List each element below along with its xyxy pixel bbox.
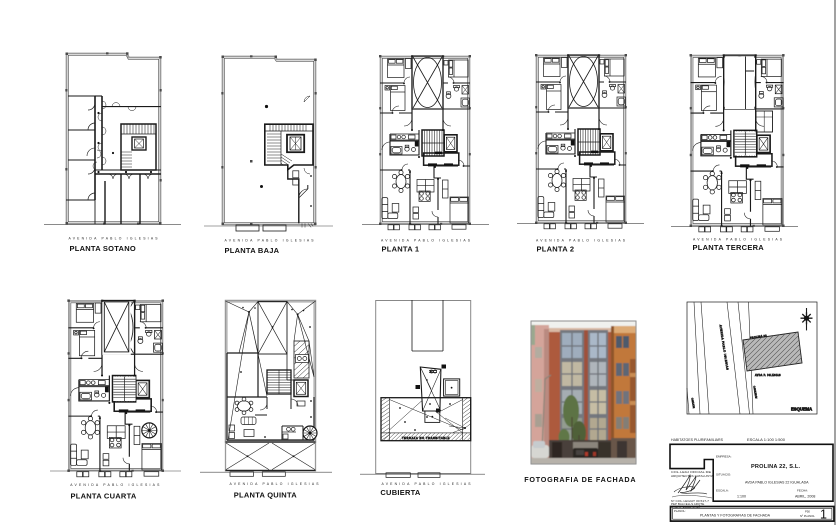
svg-text:ABRIL, 2008: ABRIL, 2008 xyxy=(795,495,815,499)
svg-text:PLANTA 2: PLANTA 2 xyxy=(537,244,575,253)
svg-text:PLANTA BAJA: PLANTA BAJA xyxy=(225,246,280,255)
svg-text:AVENIDA PABLO IGLESIAS: AVENIDA PABLO IGLESIAS xyxy=(69,237,160,241)
svg-text:AVDA PABLO IGLESIAS 22 IGUALAD: AVDA PABLO IGLESIAS 22 IGUALADA xyxy=(745,481,809,485)
svg-text:AVENIDA PABLO IGLESIAS: AVENIDA PABLO IGLESIAS xyxy=(382,482,473,486)
svg-text:P50: P50 xyxy=(805,510,810,514)
svg-text:AVENIDA PABLO IGLESIAS: AVENIDA PABLO IGLESIAS xyxy=(225,238,316,242)
svg-text:AVENIDA PABLO IGLESIAS: AVENIDA PABLO IGLESIAS xyxy=(70,483,161,487)
svg-text:PLANTA TERCERA: PLANTA TERCERA xyxy=(693,243,765,252)
svg-text:PROLINA 22, S.L.: PROLINA 22, S.L. xyxy=(751,464,801,470)
svg-text:SITUACIO:: SITUACIO: xyxy=(716,473,731,477)
svg-text:CUBIERTA: CUBIERTA xyxy=(380,488,421,497)
svg-text:PLANTA QUINTA: PLANTA QUINTA xyxy=(234,491,297,500)
svg-text:TERRAZA NO TRANSITABLE: TERRAZA NO TRANSITABLE xyxy=(402,436,450,440)
svg-text:AVENIDA PABLO IGLESIAS: AVENIDA PABLO IGLESIAS xyxy=(230,482,321,486)
svg-text:ESQUEMA: ESQUEMA xyxy=(791,407,812,412)
svg-text:1: 1 xyxy=(820,508,827,522)
svg-text:EMPRESA:: EMPRESA: xyxy=(716,455,732,459)
svg-text:PLANTA SOTANO: PLANTA SOTANO xyxy=(70,244,136,253)
svg-text:PLANTA CUARTA: PLANTA CUARTA xyxy=(71,492,137,501)
svg-text:ARQUITECTES CATALUNYA: ARQUITECTES CATALUNYA xyxy=(671,474,713,478)
svg-text:AVDA P. IGLESIAS: AVDA P. IGLESIAS xyxy=(755,374,781,377)
svg-text:PLANOL:: PLANOL: xyxy=(674,509,686,513)
svg-text:FOTOGRAFIA DE FACHADA: FOTOGRAFIA DE FACHADA xyxy=(524,475,636,484)
svg-text:FECHA:: FECHA: xyxy=(797,489,808,493)
svg-text:HABITATGES PLURIFAMILIARS: HABITATGES PLURIFAMILIARS xyxy=(671,438,724,442)
svg-text:ESCALA:: ESCALA: xyxy=(716,489,729,493)
svg-text:ESCALA 1:100 1:500: ESCALA 1:100 1:500 xyxy=(747,438,785,442)
svg-text:Nº PLANOL: Nº PLANOL xyxy=(800,514,815,518)
svg-text:PLANTAS Y FOTOGRAFIAS DE FACHA: PLANTAS Y FOTOGRAFIAS DE FACHADA xyxy=(700,514,771,518)
svg-text:AVENIDA PABLO IGLESIAS: AVENIDA PABLO IGLESIAS xyxy=(536,238,627,242)
svg-text:PLANTA 1: PLANTA 1 xyxy=(382,244,420,253)
svg-text:AVENIDA PABLO IGLESIAS: AVENIDA PABLO IGLESIAS xyxy=(381,238,472,242)
svg-text:1:100: 1:100 xyxy=(737,495,746,499)
svg-text:AVENIDA PABLO IGLESIAS: AVENIDA PABLO IGLESIAS xyxy=(693,237,784,241)
